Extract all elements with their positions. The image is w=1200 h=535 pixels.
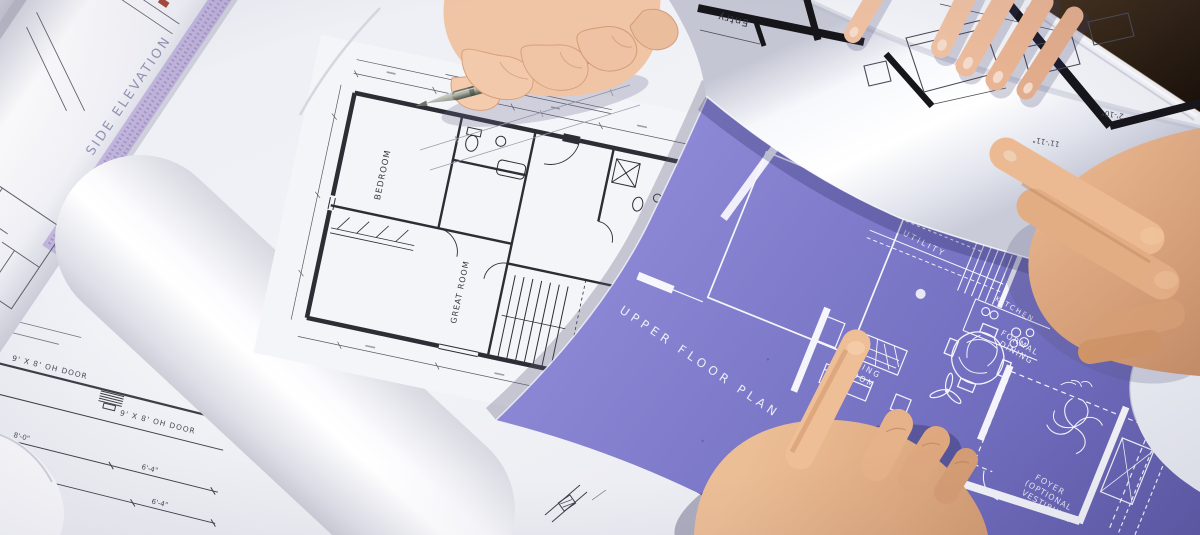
vignette-overlay: [0, 0, 1200, 535]
scene-canvas: 9' X 8' OH DOOR 9' X 8' OH DOOR 8'-0" 6'…: [0, 0, 1200, 535]
blueprint-photo-scene: 9' X 8' OH DOOR 9' X 8' OH DOOR 8'-0" 6'…: [0, 0, 1200, 535]
